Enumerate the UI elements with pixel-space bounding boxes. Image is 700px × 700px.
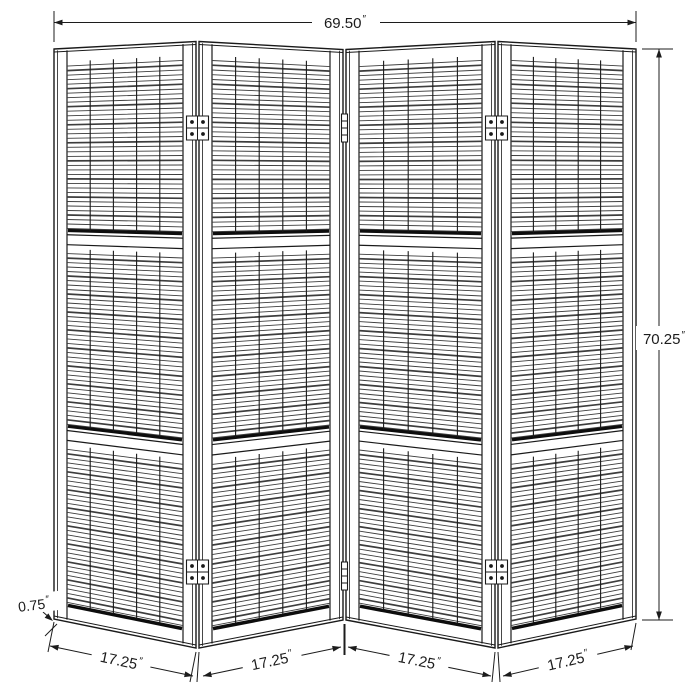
hinge-screw [489, 132, 493, 136]
hinge-screw [201, 120, 205, 124]
panel-2 [199, 42, 343, 649]
panel-2-width-dimension-label: 17.25″ [240, 644, 303, 676]
overall-height-dimension-label: 70.25″ [636, 326, 698, 350]
hinge-screw [489, 120, 493, 124]
panel-3-width-dimension-label: 17.25″ [388, 644, 451, 675]
extension-tick [45, 624, 57, 636]
extension-line [197, 652, 199, 682]
hinge-screw [500, 564, 504, 568]
hinge-screw [489, 564, 493, 568]
hinge-screw [201, 564, 205, 568]
slat-lines-thick [67, 65, 183, 217]
hinge-screw [489, 576, 493, 580]
screenshot-root: 69.50″ 70.25″ 0.75″ 17.25″ 17.25″ 17.25″… [0, 0, 700, 700]
overall-width-text: 69.50″ [324, 14, 367, 32]
hinge-top-junction-1 [187, 116, 209, 140]
extension-line [498, 652, 500, 682]
hinge-screw [201, 576, 205, 580]
panel-4-width-dimension-label: 17.25″ [536, 644, 599, 677]
slat-lines-thick [212, 65, 330, 217]
panel-3 [346, 42, 495, 649]
hinge-screw [201, 132, 205, 136]
panel-thickness-dimension-label: 0.75″ [6, 591, 62, 616]
slat-lines-thick [511, 258, 623, 433]
dimension-arrow-icon [628, 20, 637, 26]
hinge-top-junction-3 [486, 116, 508, 140]
hinge-screw [190, 120, 194, 124]
dimension-arrow-icon [347, 644, 356, 651]
extension-line [492, 652, 495, 682]
hinge-screw [190, 132, 194, 136]
dimension-arrow-icon [202, 671, 212, 678]
hinge-top-junction-2 [342, 114, 348, 142]
hinge-screw [190, 576, 194, 580]
dimension-arrow-icon [482, 671, 491, 678]
slat-lines-thick [359, 259, 482, 434]
dimension-arrow-icon [656, 612, 662, 621]
panel-4 [498, 42, 636, 649]
panel-1 [54, 42, 196, 649]
hinge-bottom-junction-2 [342, 562, 348, 590]
room-divider-technical-drawing: 69.50″ 70.25″ 0.75″ 17.25″ 17.25″ 17.25″… [0, 0, 700, 700]
dimension-arrow-icon [54, 20, 63, 26]
hinge-bottom-junction-1 [187, 560, 209, 584]
hinge-bottom-junction-3 [486, 560, 508, 584]
hinge-screw [500, 132, 504, 136]
overall-width-dimension-label: 69.50″ [312, 12, 380, 33]
hinge-screw [500, 120, 504, 124]
hinge-screw [190, 564, 194, 568]
panel-1-width-dimension-label: 17.25″ [90, 644, 153, 676]
dimension-arrow-icon [502, 671, 512, 679]
extension-line [190, 652, 196, 682]
slat-lines-thick [67, 258, 183, 433]
slat-lines-thick [212, 259, 330, 434]
dimension-arrow-icon [656, 49, 662, 58]
slat-lines-thick [511, 65, 623, 217]
overall-height-text: 70.25″ [643, 330, 686, 348]
slat-lines-thick [359, 65, 482, 217]
dimension-arrow-icon [332, 644, 342, 651]
hinge-screw [500, 576, 504, 580]
dimension-arrow-icon [49, 643, 59, 650]
